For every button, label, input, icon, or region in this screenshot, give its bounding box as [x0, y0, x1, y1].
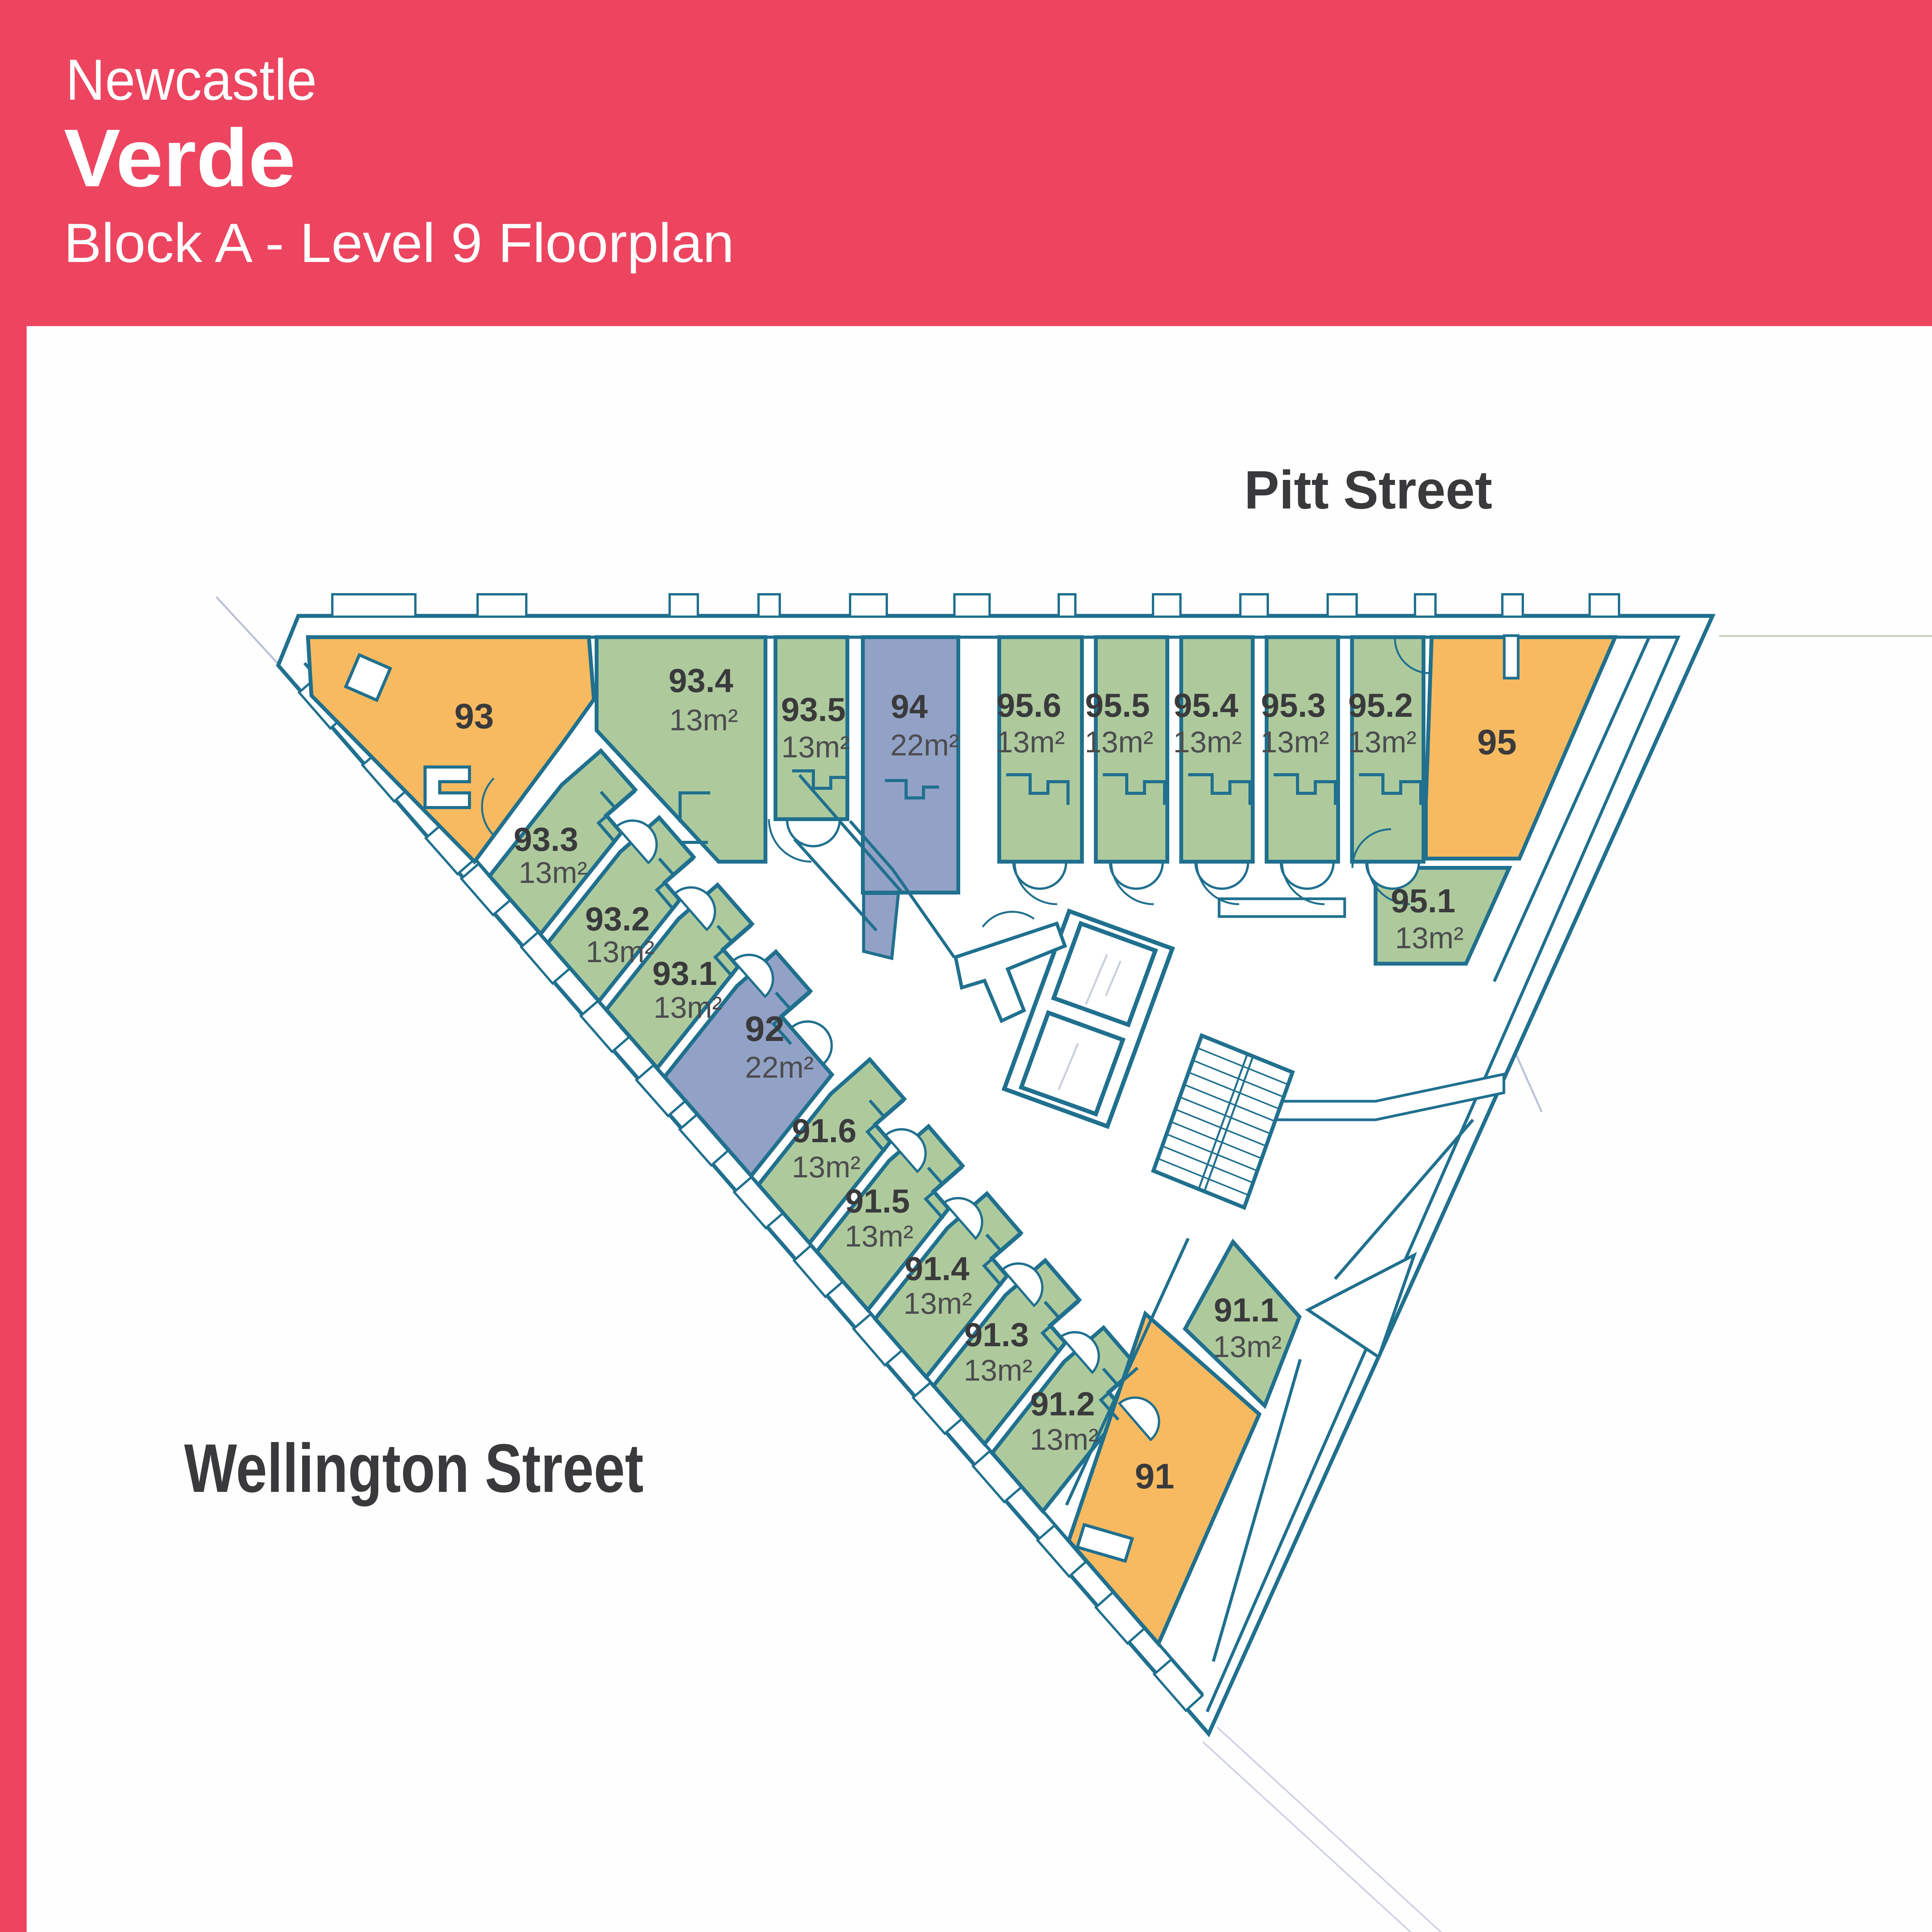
svg-text:93.5: 93.5 [781, 691, 845, 728]
svg-text:93.1: 93.1 [652, 955, 717, 992]
svg-text:93.4: 93.4 [668, 662, 733, 699]
svg-text:13m²: 13m² [845, 1219, 913, 1253]
svg-text:22m²: 22m² [745, 1050, 814, 1084]
svg-text:93.3: 93.3 [514, 821, 578, 858]
svg-text:91.4: 91.4 [905, 1250, 969, 1287]
svg-text:13m²: 13m² [903, 1286, 972, 1320]
svg-text:94: 94 [891, 688, 928, 725]
svg-text:91.5: 91.5 [845, 1183, 910, 1220]
svg-text:13m²: 13m² [1395, 921, 1464, 955]
svg-text:93.2: 93.2 [585, 901, 650, 938]
svg-text:Wellington Street: Wellington Street [184, 1430, 644, 1507]
svg-text:95: 95 [1477, 723, 1517, 762]
svg-text:Block A - Level 9 Floorplan: Block A - Level 9 Floorplan [64, 213, 734, 274]
svg-text:13m²: 13m² [653, 990, 722, 1024]
svg-text:92: 92 [745, 1009, 784, 1049]
svg-text:13m²: 13m² [1030, 1422, 1099, 1456]
svg-text:93: 93 [454, 697, 494, 736]
svg-text:91.1: 91.1 [1214, 1292, 1278, 1329]
svg-text:91.6: 91.6 [792, 1112, 856, 1150]
svg-text:95.4: 95.4 [1173, 687, 1238, 724]
svg-text:95.6: 95.6 [997, 687, 1061, 724]
svg-text:13m²: 13m² [586, 935, 655, 969]
svg-text:91: 91 [1135, 1457, 1174, 1496]
svg-text:Newcastle: Newcastle [66, 47, 317, 112]
svg-text:13m²: 13m² [1260, 725, 1329, 759]
svg-text:95.1: 95.1 [1391, 883, 1455, 920]
svg-text:91.3: 91.3 [964, 1316, 1029, 1354]
svg-text:Pitt Street: Pitt Street [1244, 459, 1492, 520]
svg-text:13m²: 13m² [792, 1150, 861, 1184]
svg-text:91.2: 91.2 [1030, 1386, 1095, 1423]
svg-text:13m²: 13m² [1348, 725, 1417, 759]
svg-text:95.2: 95.2 [1348, 687, 1413, 724]
svg-text:13m²: 13m² [964, 1353, 1032, 1387]
svg-text:13m²: 13m² [519, 855, 587, 889]
svg-text:13m²: 13m² [1213, 1330, 1282, 1364]
svg-text:13m²: 13m² [781, 730, 850, 764]
svg-text:13m²: 13m² [1173, 725, 1242, 759]
svg-text:Verde: Verde [64, 112, 296, 204]
svg-text:22m²: 22m² [890, 728, 959, 762]
svg-text:13m²: 13m² [669, 703, 738, 737]
svg-text:13m²: 13m² [1085, 725, 1153, 759]
svg-text:13m²: 13m² [996, 725, 1065, 759]
svg-text:95.3: 95.3 [1261, 687, 1325, 724]
svg-text:95.5: 95.5 [1085, 687, 1150, 724]
